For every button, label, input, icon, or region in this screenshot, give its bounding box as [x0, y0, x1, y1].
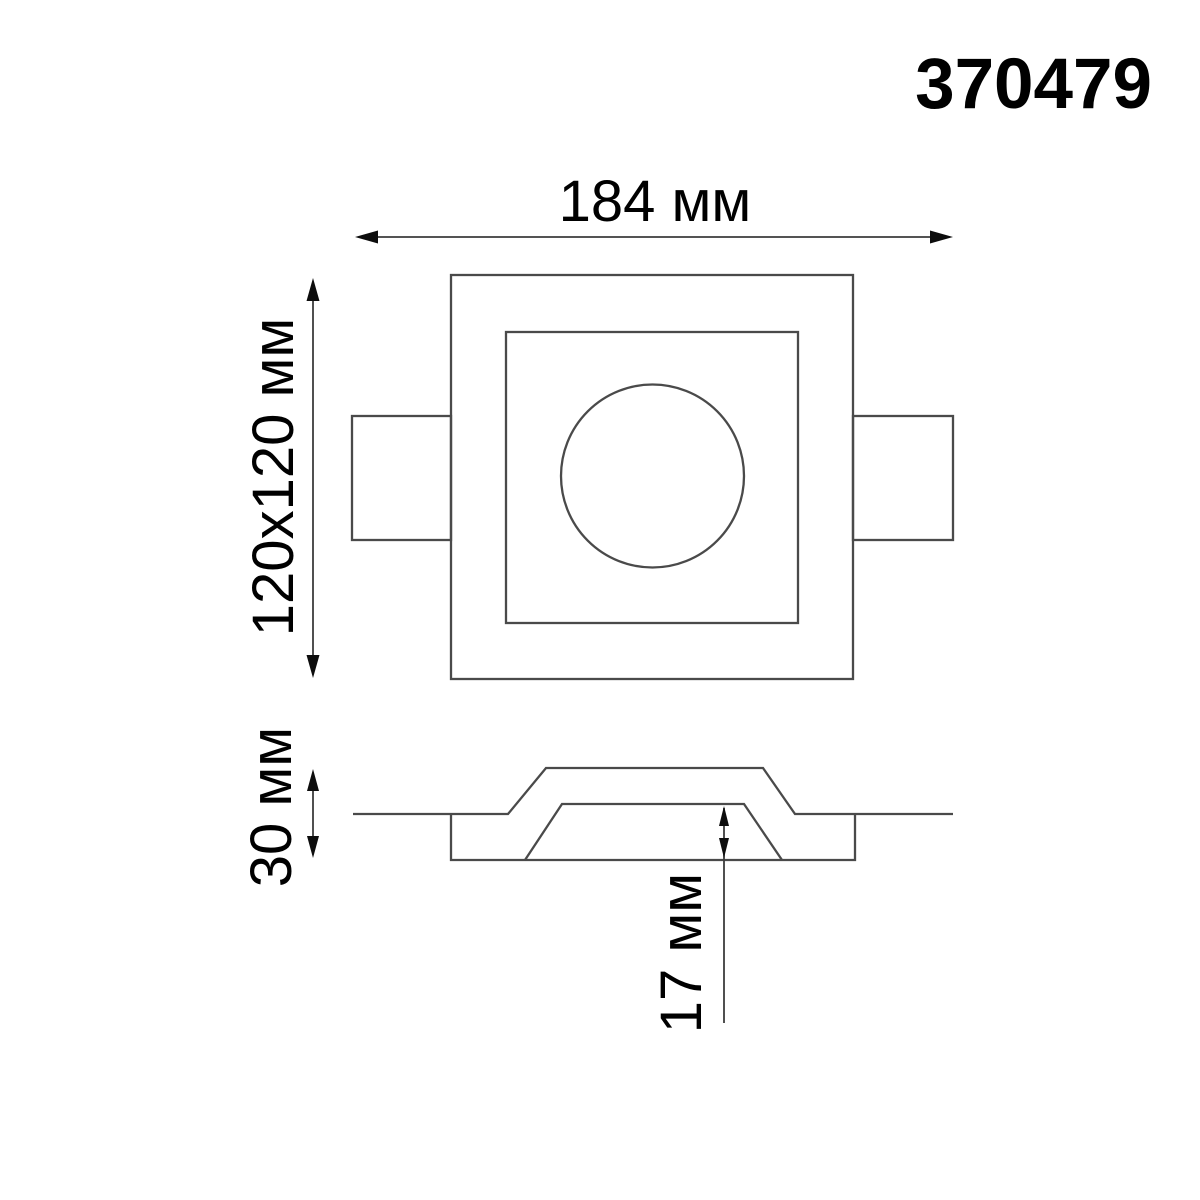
recess-depth-dimension-label: 17 мм [649, 873, 714, 1033]
body-size-dimension-bottom-arrow-icon [307, 655, 320, 678]
body-size-dimension-label: 120х120 мм [241, 318, 306, 636]
section-flange-body [451, 814, 855, 860]
left-mounting-tab [352, 416, 451, 540]
dimension-drawing-page: 370479 [0, 0, 1200, 1200]
section-outer-profile [353, 768, 953, 814]
section-inner-recess-profile [525, 804, 782, 860]
lamp-opening-circle [561, 385, 744, 568]
height-dimension-label: 30 мм [239, 727, 304, 887]
recess-depth-top-arrow-icon [719, 806, 729, 826]
fixture-outer-square [451, 275, 853, 679]
fixture-inner-square [506, 332, 798, 623]
product-code: 370479 [915, 45, 1152, 124]
technical-drawing-canvas: 370479 [0, 0, 1200, 1200]
right-mounting-tab [853, 416, 953, 540]
width-dimension-right-arrow-icon [930, 231, 953, 244]
section-view-outline-group [353, 768, 953, 860]
recess-depth-bottom-arrow-icon [719, 838, 729, 858]
dimensions-group [307, 231, 954, 1024]
width-dimension-left-arrow-icon [355, 231, 378, 244]
height-dimension-bottom-arrow-icon [307, 836, 319, 858]
body-size-dimension-top-arrow-icon [307, 278, 320, 301]
top-view-outline-group [352, 275, 953, 679]
height-dimension-top-arrow-icon [307, 769, 319, 791]
width-dimension-label: 184 мм [559, 169, 752, 234]
